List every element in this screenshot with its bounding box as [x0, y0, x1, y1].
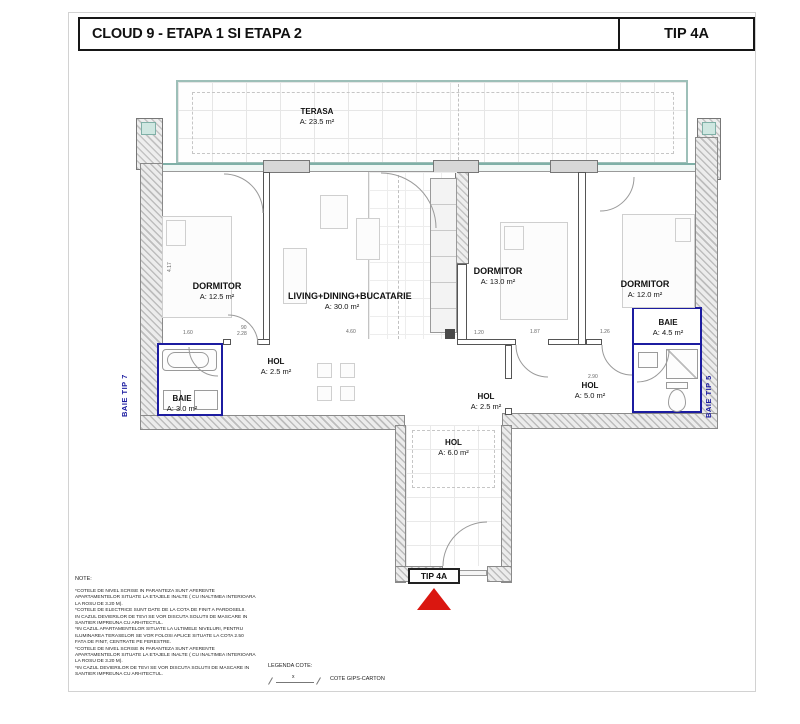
- dim-label: 1.60: [183, 330, 193, 336]
- exterior-wall-bottom-right: [502, 413, 718, 429]
- room-name: DORMITOR: [182, 281, 252, 292]
- side-label-baie-tip5: BAIE TIP 5: [704, 340, 713, 418]
- legend-symbol-row: x COTE GIPS-CARTON: [268, 676, 428, 688]
- living-dashed-cote-line: [398, 175, 399, 339]
- notes-title: NOTE:: [75, 576, 285, 582]
- room-label-hol1: HOL A: 2.5 m²: [247, 356, 305, 377]
- room-area: A: 30.0 m²: [288, 302, 396, 312]
- dim-label: 2.90: [588, 374, 598, 380]
- glazed-facade: [163, 163, 695, 172]
- wall-hol1-b: [257, 339, 270, 345]
- wall-hol1-a: [223, 339, 231, 345]
- left-pillar-window: [141, 122, 156, 135]
- entry-wall-right: [501, 425, 512, 583]
- room-name: LIVING+DINING+BUCATARIE: [288, 291, 396, 302]
- wall-bedroom2-bedroom3: [578, 172, 586, 345]
- room-label-hol3: HOL A: 5.0 m²: [560, 380, 620, 401]
- right-pillar-window: [702, 122, 716, 135]
- room-area: A: 23.5 m²: [272, 117, 362, 127]
- pillow-bedroom1: [166, 220, 186, 246]
- room-label-living: LIVING+DINING+BUCATARIE A: 30.0 m²: [288, 291, 396, 312]
- pillow-bedroom2: [504, 226, 524, 250]
- pillow-bedroom3: [675, 218, 691, 242]
- room-label-hol2: HOL A: 2.5 m²: [458, 391, 514, 412]
- legend-tick-icon: [268, 677, 273, 684]
- room-name: TERASA: [272, 106, 362, 117]
- room-area: A: 3.0 m²: [158, 404, 206, 414]
- entrance-marker-triangle: [417, 588, 451, 610]
- entry-wall-left: [395, 425, 406, 583]
- exterior-wall-bottom-left: [140, 415, 405, 430]
- entry-wall-bottom-right: [487, 566, 512, 582]
- toilet-tank: [666, 382, 688, 389]
- wall-hol2-hol3-a: [505, 345, 512, 379]
- room-label-dormitor2: DORMITOR A: 13.0 m²: [458, 266, 538, 287]
- terrace-door-1: [263, 160, 310, 173]
- room-area: A: 12.5 m²: [182, 292, 252, 302]
- room-label-hol-entry: HOL A: 6.0 m²: [406, 437, 501, 458]
- room-area: A: 2.5 m²: [247, 367, 305, 377]
- legend-tick-icon: [316, 677, 321, 684]
- notes-block: NOTE: *COTELE DE NIVEL SCRISE IN PARANTE…: [75, 576, 285, 679]
- terrace-dashed-axis: [458, 84, 459, 160]
- room-area: A: 5.0 m²: [560, 391, 620, 401]
- room-label-dormitor1: DORMITOR A: 12.5 m²: [182, 281, 252, 302]
- shower: [666, 349, 698, 379]
- room-area: A: 4.5 m²: [642, 328, 694, 338]
- dining-chair-2: [340, 363, 355, 378]
- dim-label: 1.20: [474, 330, 484, 336]
- dim-label: 2.28: [237, 331, 247, 337]
- room-area: A: 6.0 m²: [406, 448, 501, 458]
- kitchen-counter: [430, 178, 457, 333]
- title-block: CLOUD 9 - ETAPA 1 SI ETAPA 2 TIP 4A: [78, 17, 755, 51]
- wall-bedroom3-bottom: [586, 339, 602, 345]
- bathtub-basin: [167, 352, 209, 368]
- room-name: HOL: [247, 356, 305, 367]
- notes-body: *COTELE DE NIVEL SCRISE IN PARANTEZA SUN…: [75, 589, 285, 679]
- dim-label-vertical: 4.17: [167, 252, 173, 272]
- bathroom2-sink: [638, 352, 658, 368]
- room-area: A: 12.0 m²: [608, 290, 682, 300]
- dim-label: 1.26: [600, 329, 610, 335]
- room-name: DORMITOR: [608, 279, 682, 290]
- living-armchair: [356, 218, 380, 260]
- toilet: [668, 389, 686, 412]
- room-label-baie1: BAIE A: 3.0 m²: [158, 393, 206, 414]
- room-label-dormitor3: DORMITOR A: 12.0 m²: [608, 279, 682, 300]
- room-name: HOL: [458, 391, 514, 402]
- room-name: BAIE: [642, 317, 694, 328]
- dim-label: 1.87: [530, 329, 540, 335]
- legend-dimension-line: [276, 682, 314, 683]
- dining-chair-1: [317, 363, 332, 378]
- legend-title: LEGENDA COTE:: [268, 663, 428, 669]
- room-area: A: 13.0 m²: [458, 277, 538, 287]
- room-label-baie2: BAIE A: 4.5 m²: [642, 317, 694, 338]
- apartment-type-label: TIP 4A: [618, 19, 753, 49]
- entrance-type-tag: TIP 4A: [408, 568, 460, 584]
- legend-item-label: COTE GIPS-CARTON: [330, 676, 385, 682]
- room-name: DORMITOR: [458, 266, 538, 277]
- kitchen-sink: [445, 329, 455, 339]
- room-name: HOL: [560, 380, 620, 391]
- terrace-door-3: [550, 160, 598, 173]
- wall-bedroom1-living: [263, 172, 270, 342]
- wall-pier-kitchen: [455, 172, 469, 264]
- dining-chair-4: [340, 386, 355, 401]
- room-area: A: 2.5 m²: [458, 402, 514, 412]
- bathroom2-divider: [632, 343, 702, 345]
- living-sofa: [320, 195, 348, 229]
- room-name: HOL: [406, 437, 501, 448]
- dining-chair-3: [317, 386, 332, 401]
- side-label-baie-tip7: BAIE TIP 7: [120, 343, 129, 417]
- project-title: CLOUD 9 - ETAPA 1 SI ETAPA 2: [80, 19, 618, 49]
- terrace-dashed-outline: [192, 92, 674, 154]
- legend-symbol-label: x: [292, 674, 295, 680]
- room-label-terasa: TERASA A: 23.5 m²: [272, 106, 362, 127]
- dim-label: 4.60: [346, 329, 356, 335]
- legend-block: LEGENDA COTE: x COTE GIPS-CARTON: [268, 663, 428, 669]
- room-name: BAIE: [158, 393, 206, 404]
